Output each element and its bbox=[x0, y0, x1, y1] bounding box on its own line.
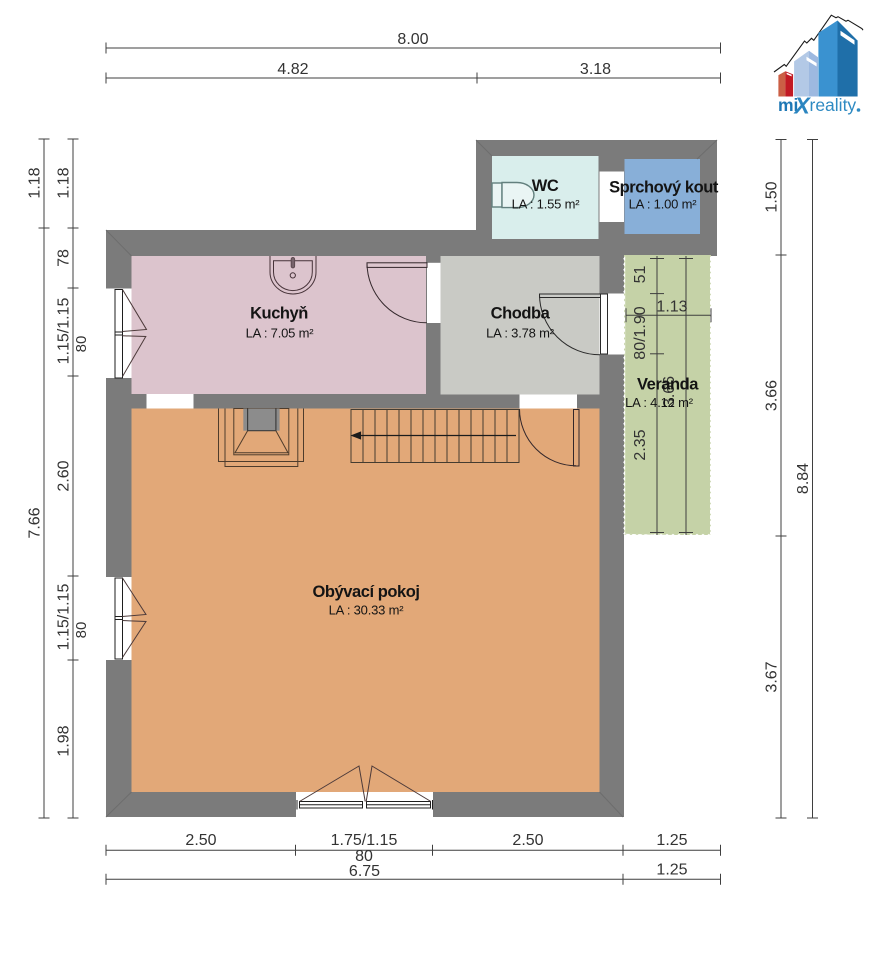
svg-text:Obývací pokoj: Obývací pokoj bbox=[313, 583, 420, 601]
svg-text:1.25: 1.25 bbox=[656, 832, 687, 849]
svg-text:1.25: 1.25 bbox=[656, 862, 687, 879]
svg-text:Kuchyň: Kuchyň bbox=[250, 305, 308, 323]
svg-text:1.18: 1.18 bbox=[56, 167, 73, 198]
svg-text:Veranda: Veranda bbox=[637, 376, 699, 394]
svg-text:1.15/1.15: 1.15/1.15 bbox=[56, 298, 73, 365]
svg-text:8.84: 8.84 bbox=[795, 463, 812, 494]
svg-text:1.75/1.15: 1.75/1.15 bbox=[331, 832, 398, 849]
svg-text:80/1.90: 80/1.90 bbox=[632, 306, 649, 359]
svg-text:1.13: 1.13 bbox=[656, 298, 687, 315]
svg-text:3.18: 3.18 bbox=[580, 61, 611, 78]
svg-text:Sprchový kout: Sprchový kout bbox=[609, 179, 719, 197]
svg-text:2.60: 2.60 bbox=[56, 460, 73, 491]
svg-text:LA : 30.33 m²: LA : 30.33 m² bbox=[329, 602, 405, 617]
svg-text:2.35: 2.35 bbox=[632, 429, 649, 460]
svg-text:1.98: 1.98 bbox=[56, 725, 73, 756]
svg-text:LA : 1.00 m²: LA : 1.00 m² bbox=[629, 197, 698, 212]
svg-text:LA : 7.05 m²: LA : 7.05 m² bbox=[246, 326, 315, 341]
svg-text:1.18: 1.18 bbox=[27, 167, 44, 198]
svg-text:80: 80 bbox=[73, 622, 90, 639]
svg-text:LA : 1.55 m²: LA : 1.55 m² bbox=[512, 197, 581, 212]
svg-text:80: 80 bbox=[73, 336, 90, 353]
svg-text:8.00: 8.00 bbox=[397, 31, 428, 48]
svg-text:2.50: 2.50 bbox=[512, 832, 543, 849]
svg-text:2.50: 2.50 bbox=[185, 832, 216, 849]
svg-text:51: 51 bbox=[632, 266, 649, 284]
svg-text:3.67: 3.67 bbox=[764, 661, 781, 692]
svg-text:7.66: 7.66 bbox=[27, 507, 44, 538]
svg-text:78: 78 bbox=[56, 249, 73, 267]
svg-text:LA : 4.12 m²: LA : 4.12 m² bbox=[625, 395, 694, 410]
svg-text:Chodba: Chodba bbox=[491, 305, 551, 323]
svg-text:WC: WC bbox=[532, 177, 559, 195]
svg-text:6.75: 6.75 bbox=[349, 863, 380, 880]
svg-text:4.82: 4.82 bbox=[277, 61, 308, 78]
svg-text:3.66: 3.66 bbox=[764, 380, 781, 411]
svg-text:1.50: 1.50 bbox=[764, 181, 781, 212]
svg-text:1.15/1.15: 1.15/1.15 bbox=[56, 584, 73, 651]
svg-text:reality: reality bbox=[810, 95, 857, 115]
svg-text:LA : 3.78 m²: LA : 3.78 m² bbox=[486, 326, 555, 341]
